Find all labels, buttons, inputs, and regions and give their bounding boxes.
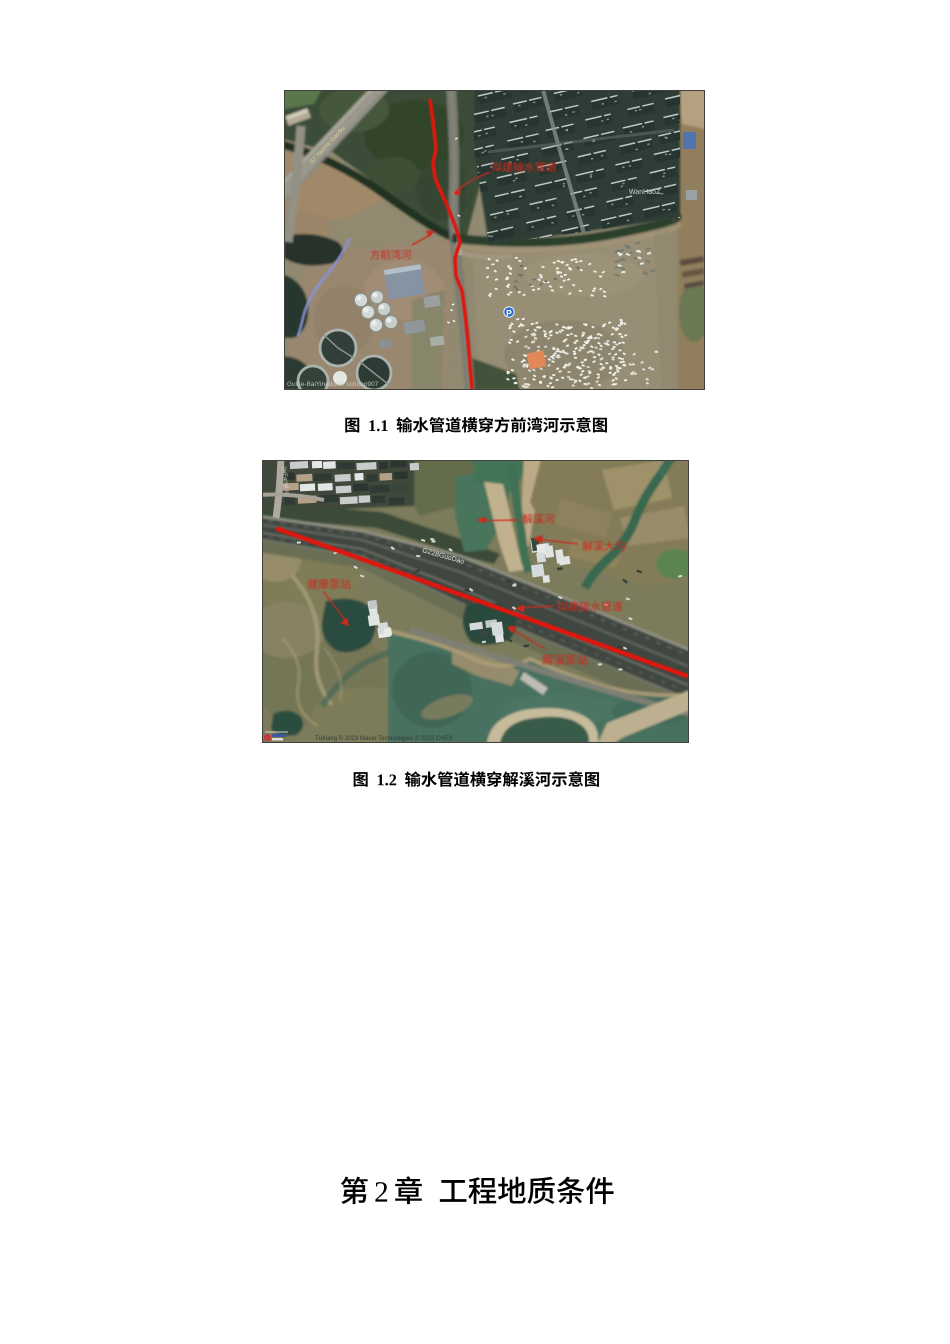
- svg-text:TuXiang © 2023 Maxar Technolog: TuXiang © 2023 Maxar Technologies © 2023…: [315, 735, 453, 742]
